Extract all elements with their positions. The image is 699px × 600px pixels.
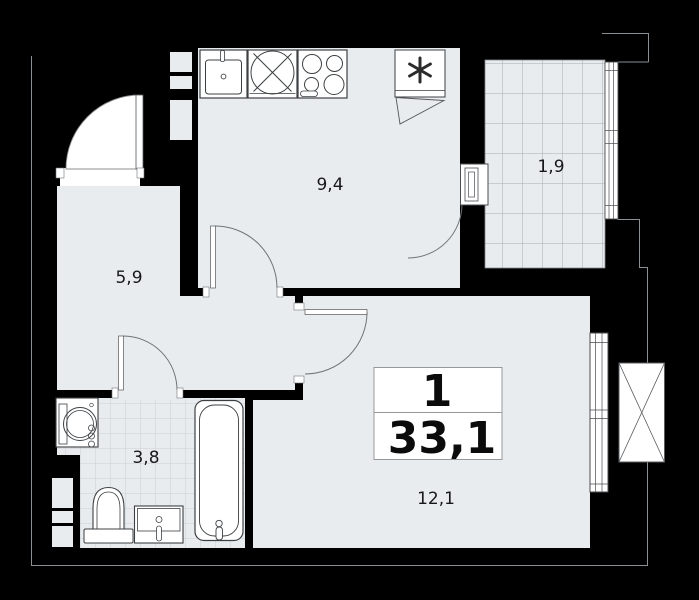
total-area-label: 33,1 <box>388 413 497 464</box>
living-room-window <box>590 333 608 492</box>
stove-icon <box>298 50 347 98</box>
floor-plan-page: 9,4 1,9 5,9 3,8 12,1 1 33,1 <box>0 0 699 600</box>
kitchen-area-label: 9,4 <box>316 175 343 195</box>
hob-icon <box>248 50 297 98</box>
vanity-sink-icon <box>135 506 184 543</box>
kitchen-door-opening <box>206 286 280 298</box>
floor-plan: 9,4 1,9 5,9 3,8 12,1 1 33,1 <box>0 0 699 600</box>
living-area-label: 12,1 <box>417 489 455 509</box>
rooms-count-label: 1 <box>422 366 453 417</box>
living-door-opening <box>293 310 305 378</box>
hallway-area-label: 5,9 <box>115 268 142 288</box>
door-leaf <box>305 310 367 315</box>
bathtub-icon <box>195 401 243 541</box>
bathroom-door-opening <box>115 388 179 400</box>
door-leaf <box>211 226 216 288</box>
sink-icon <box>200 50 247 98</box>
bathroom-area-label: 3,8 <box>132 448 159 468</box>
entrance-door-leaf <box>136 95 143 169</box>
entrance-opening <box>60 168 140 186</box>
ac-unit-icon <box>619 363 665 462</box>
door-leaf <box>119 336 124 390</box>
summary-box: 1 33,1 <box>374 366 502 464</box>
washing-machine-icon <box>56 398 98 447</box>
balcony-area-label: 1,9 <box>537 157 564 177</box>
balcony-window <box>605 62 618 219</box>
